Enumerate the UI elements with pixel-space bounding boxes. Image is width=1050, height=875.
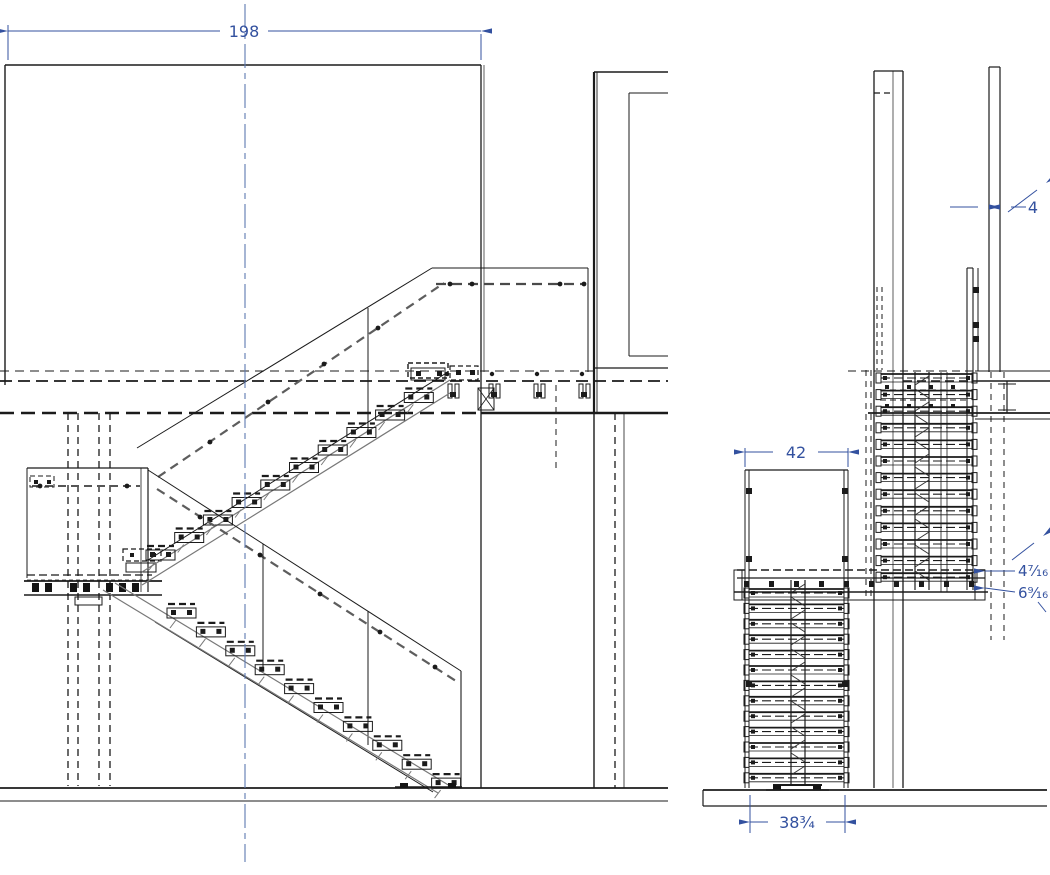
detail-rect bbox=[437, 371, 442, 376]
detail-rect bbox=[470, 370, 475, 375]
landing-bolt bbox=[106, 583, 113, 592]
section-ground-slab bbox=[703, 790, 1047, 806]
floor-edge-guardrail bbox=[432, 268, 588, 372]
tread-bolt bbox=[838, 714, 842, 718]
second-floor-slab bbox=[0, 368, 668, 413]
beam-tick bbox=[229, 658, 235, 666]
dimension-line bbox=[1012, 543, 1034, 560]
dimension-arrowhead bbox=[734, 449, 745, 454]
landing-bolt bbox=[819, 581, 824, 587]
tread-end-cap bbox=[876, 506, 881, 516]
dimension-arrowhead bbox=[739, 819, 750, 824]
guard-bolt bbox=[842, 556, 848, 562]
standoff-bolt bbox=[558, 282, 563, 287]
tread-bolt bbox=[406, 761, 411, 766]
tread-bolt bbox=[883, 393, 887, 397]
drawing-canvas[interactable]: 198 42 38¾ 4 4⁷⁄₁₆ 6⁹⁄₁₆ bbox=[0, 0, 1050, 875]
tread-bolt bbox=[200, 629, 205, 634]
landing-bolt bbox=[869, 581, 874, 587]
tread-bolt bbox=[838, 776, 842, 780]
tread-bolt bbox=[187, 610, 192, 615]
tread-bolt bbox=[751, 730, 755, 734]
tread-bolt bbox=[436, 780, 441, 785]
detail-rect bbox=[951, 385, 955, 389]
landing-bolt bbox=[919, 581, 924, 587]
tread-bolt bbox=[883, 575, 887, 579]
standoff-bolt bbox=[318, 592, 323, 597]
landing-bolt bbox=[944, 581, 949, 587]
landing-end-bracket bbox=[734, 570, 742, 600]
tread-end-cap bbox=[876, 456, 881, 466]
tread-bolt bbox=[252, 500, 257, 505]
tread-bolt bbox=[275, 667, 280, 672]
tread-bolt bbox=[966, 393, 970, 397]
tread-bolt bbox=[305, 686, 310, 691]
elevation-view bbox=[0, 65, 668, 801]
section-view bbox=[703, 67, 1050, 806]
tread-bolt bbox=[294, 465, 299, 470]
tread-bolt bbox=[883, 476, 887, 480]
standoff-bolt bbox=[258, 553, 263, 558]
tread-bolt bbox=[236, 500, 241, 505]
standoff-bolt bbox=[536, 392, 542, 397]
stringer-hatch bbox=[791, 636, 805, 645]
stringer-beam bbox=[142, 380, 450, 572]
tread-bolt bbox=[838, 653, 842, 657]
tread-bolt bbox=[408, 395, 413, 400]
tread-end-cap bbox=[876, 423, 881, 433]
standoff-bolt bbox=[470, 282, 475, 287]
tread-end-cap bbox=[876, 373, 881, 383]
stringer-hatch bbox=[791, 740, 805, 749]
detail-rect bbox=[47, 480, 51, 484]
tread-bolt bbox=[838, 760, 842, 764]
tread-bolt bbox=[838, 637, 842, 641]
standoff-bolt bbox=[433, 665, 438, 670]
tread-bolt bbox=[966, 459, 970, 463]
tread-bolt bbox=[838, 730, 842, 734]
dimension-text-4[interactable]: 4 bbox=[1028, 198, 1038, 217]
guard-bolt bbox=[842, 681, 848, 687]
stringer-hatch bbox=[791, 675, 805, 684]
ground-line bbox=[0, 788, 668, 801]
tread-bolt bbox=[883, 409, 887, 413]
standoff-bolt bbox=[450, 392, 456, 397]
tread-bolt bbox=[289, 686, 294, 691]
standoff-bolt bbox=[376, 326, 381, 331]
tread-bolt bbox=[751, 606, 755, 610]
dimension-overall-width[interactable]: 198 bbox=[0, 22, 492, 60]
tread-bolt bbox=[751, 668, 755, 672]
standoff-bolt bbox=[490, 372, 494, 376]
dimension-line bbox=[985, 588, 1015, 592]
tread-bolt bbox=[883, 542, 887, 546]
tread-bolt bbox=[966, 426, 970, 430]
stringer-hatch bbox=[915, 545, 929, 554]
dimension-arrowhead bbox=[1044, 174, 1050, 185]
stringer-hatch bbox=[791, 701, 805, 710]
standoff-bolt bbox=[973, 287, 979, 293]
glass-top-edge bbox=[137, 268, 432, 448]
mid-landing bbox=[24, 468, 162, 605]
tread-bolt bbox=[424, 395, 429, 400]
tread-bolt bbox=[351, 430, 356, 435]
landing-bolt bbox=[70, 583, 77, 592]
tread-end-cap bbox=[876, 539, 881, 549]
standoff-bolt bbox=[378, 630, 383, 635]
landing-bolt bbox=[83, 583, 90, 592]
standoff-bolt bbox=[322, 362, 327, 367]
detail-rect bbox=[34, 480, 38, 484]
landing-plate bbox=[75, 597, 102, 605]
tread-bolt bbox=[966, 442, 970, 446]
tread-end-cap bbox=[876, 572, 881, 582]
tread-bolt bbox=[966, 409, 970, 413]
stringer-hatch bbox=[915, 454, 929, 463]
detail-rect bbox=[885, 385, 889, 389]
section-lower-tread-stack bbox=[744, 580, 849, 790]
tread-bolt bbox=[338, 447, 343, 452]
stringer-beam bbox=[142, 393, 450, 585]
tread-bolt bbox=[751, 745, 755, 749]
tread-bolt bbox=[751, 653, 755, 657]
tread-bolt bbox=[966, 476, 970, 480]
section-guard-posts bbox=[745, 470, 848, 788]
tread-bolt bbox=[966, 509, 970, 513]
stringer-hatch bbox=[915, 415, 929, 424]
dimension-arrowhead bbox=[481, 28, 492, 33]
tread-bolt bbox=[259, 667, 264, 672]
tread-bolt bbox=[377, 742, 382, 747]
tread-end-cap bbox=[876, 556, 881, 566]
tread-bolt bbox=[883, 442, 887, 446]
dimension-base-width[interactable]: 38¾ bbox=[739, 795, 856, 833]
standoff-bolt bbox=[448, 282, 453, 287]
tread-bolt bbox=[883, 525, 887, 529]
standoff-bolt bbox=[580, 372, 584, 376]
dimension-arrowhead bbox=[845, 819, 856, 824]
standoff-bolt bbox=[973, 336, 979, 342]
detail-rect bbox=[130, 553, 134, 557]
tread-end-cap bbox=[876, 473, 881, 483]
guard-bolt bbox=[746, 556, 752, 562]
landing-bolt bbox=[132, 583, 139, 592]
tread-bolt bbox=[838, 699, 842, 703]
landing-bolt bbox=[45, 583, 52, 592]
standoff-bolt bbox=[125, 484, 130, 489]
standoff-bolt bbox=[535, 372, 539, 376]
hidden-support-posts bbox=[68, 413, 110, 786]
base-foot bbox=[400, 783, 408, 788]
tread-bolt bbox=[751, 760, 755, 764]
dimension-line bbox=[1038, 602, 1046, 612]
landing-bolt bbox=[794, 581, 799, 587]
tread-bolt bbox=[751, 622, 755, 626]
tread-bolt bbox=[179, 535, 184, 540]
tread-bolt bbox=[883, 426, 887, 430]
tread-bolt bbox=[380, 412, 385, 417]
tread-bolt bbox=[265, 482, 270, 487]
beam-tick bbox=[258, 677, 264, 685]
tread-bolt bbox=[195, 535, 200, 540]
tread-bolt bbox=[883, 492, 887, 496]
base-foot bbox=[448, 783, 456, 788]
tread-bolt bbox=[966, 376, 970, 380]
beam-tick bbox=[288, 696, 294, 704]
tread-bolt bbox=[246, 648, 251, 653]
tread-bolt bbox=[966, 559, 970, 563]
tread-bolt bbox=[393, 742, 398, 747]
tread-bolt bbox=[966, 525, 970, 529]
guard-bolt bbox=[746, 488, 752, 494]
standoff-bolt bbox=[198, 515, 203, 520]
section-wall-column bbox=[874, 71, 903, 788]
tread-bolt bbox=[347, 723, 352, 728]
upper-flight bbox=[137, 268, 494, 585]
dimension-text-6-9-16[interactable]: 6⁹⁄₁₆ bbox=[1018, 584, 1048, 602]
tread-bolt bbox=[751, 699, 755, 703]
tread-end-cap bbox=[876, 522, 881, 532]
beam-tick bbox=[170, 620, 176, 628]
stringer-hatch bbox=[915, 467, 929, 476]
guard-bolt bbox=[842, 488, 848, 494]
glass-top-edge bbox=[148, 470, 461, 671]
tread-bolt bbox=[751, 714, 755, 718]
tread-bolt bbox=[751, 637, 755, 641]
tread-end-cap bbox=[876, 489, 881, 499]
standoff-bolt bbox=[208, 440, 213, 445]
stringer-top bbox=[155, 622, 433, 792]
standoff-bolt bbox=[581, 392, 587, 397]
tread-bolt bbox=[751, 776, 755, 780]
tread-bolt bbox=[883, 459, 887, 463]
tread-bolt bbox=[966, 542, 970, 546]
tread-bolt bbox=[966, 492, 970, 496]
dimension-arrowhead bbox=[848, 449, 859, 454]
wall-outline bbox=[5, 65, 668, 788]
tread-bolt bbox=[230, 648, 235, 653]
cad-drawing: 198 42 38¾ 4 4⁷⁄₁₆ 6⁹⁄₁₆ bbox=[0, 0, 1050, 875]
landing-bolt bbox=[32, 583, 39, 592]
landing-bolt bbox=[894, 581, 899, 587]
section-upper-tread-stack bbox=[876, 372, 977, 592]
standoff-bolt bbox=[582, 282, 587, 287]
stringer-hatch bbox=[791, 714, 805, 723]
dimension-text-4-7-16[interactable]: 4⁷⁄₁₆ bbox=[1018, 562, 1048, 580]
detail-rect bbox=[907, 385, 911, 389]
dimension-arrowhead bbox=[1041, 527, 1050, 538]
tread-bolt bbox=[883, 509, 887, 513]
tread-bolt bbox=[838, 668, 842, 672]
tread-bolt bbox=[310, 465, 315, 470]
tread-bolt bbox=[367, 430, 372, 435]
dimension-stair-width[interactable]: 42 bbox=[734, 443, 859, 467]
tread-end-cap bbox=[876, 406, 881, 416]
dimension-text-198[interactable]: 198 bbox=[229, 22, 260, 41]
section-landing-band bbox=[734, 570, 988, 600]
tread-end-cap bbox=[876, 439, 881, 449]
dimension-text-38-3-4[interactable]: 38¾ bbox=[779, 813, 815, 832]
tread-bolt bbox=[396, 412, 401, 417]
tread-bolt bbox=[150, 552, 155, 557]
tread-bolt bbox=[318, 705, 323, 710]
tread-bolt bbox=[838, 745, 842, 749]
dimension-arrowhead bbox=[0, 28, 8, 33]
tread-end-cap bbox=[876, 390, 881, 400]
dimension-arrowhead bbox=[974, 585, 985, 590]
dimension-text-42[interactable]: 42 bbox=[786, 443, 806, 462]
guard-bolt bbox=[746, 681, 752, 687]
tread-bolt bbox=[171, 610, 176, 615]
stringer-beam bbox=[115, 583, 450, 786]
tread-bolt bbox=[166, 552, 171, 557]
detail-rect bbox=[456, 370, 461, 375]
section-glass-panels bbox=[877, 67, 1004, 640]
tread-bolt bbox=[838, 606, 842, 610]
beam-tick bbox=[199, 639, 205, 647]
tread-bolt bbox=[883, 376, 887, 380]
dimension-arrowhead bbox=[974, 568, 985, 573]
stringer-hatch bbox=[915, 428, 929, 437]
handrail-hidden bbox=[158, 283, 444, 477]
tread-bolt bbox=[838, 622, 842, 626]
tread-bolt bbox=[838, 683, 842, 687]
standoff-bolt bbox=[38, 484, 43, 489]
tread-bolt bbox=[966, 575, 970, 579]
lower-flight bbox=[103, 470, 462, 798]
tread-bolt bbox=[322, 447, 327, 452]
tread-bolt bbox=[422, 761, 427, 766]
standoff-bolt bbox=[266, 400, 271, 405]
tread-bolt bbox=[334, 705, 339, 710]
tread-bolt bbox=[363, 723, 368, 728]
tread-bolt bbox=[281, 482, 286, 487]
tread-bolt bbox=[883, 559, 887, 563]
tread-bolt bbox=[216, 629, 221, 634]
stringer-hatch bbox=[791, 610, 805, 619]
landing-bolt bbox=[969, 581, 974, 587]
stringer-beam bbox=[103, 590, 438, 793]
standoff-bolt bbox=[973, 322, 979, 328]
detail-rect bbox=[416, 371, 421, 376]
landing-bolt bbox=[769, 581, 774, 587]
stringer-hatch bbox=[915, 558, 929, 567]
